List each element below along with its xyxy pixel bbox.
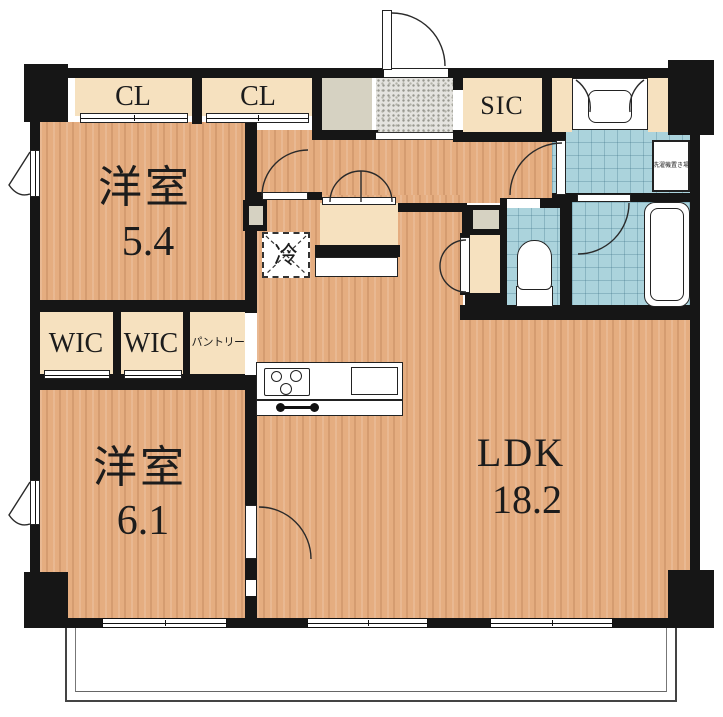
window-bedroom1-left <box>30 150 40 197</box>
bedroom1-door-leaf <box>262 192 308 200</box>
balcony-inner-rail <box>75 628 667 692</box>
window-ldk-south-2 <box>490 618 613 628</box>
washer-space-label: 洗濯機置き場 <box>653 163 689 169</box>
counter-handle-dot <box>276 403 285 412</box>
counter-handle-dot <box>310 403 319 412</box>
window-ldk-south-1 <box>307 618 428 628</box>
room-ldk-size: 18.2 <box>492 480 562 520</box>
wic2-sliding-door <box>124 370 182 379</box>
wall-between-closets <box>192 70 202 124</box>
wic1-sliding-door <box>44 370 110 379</box>
closet1-sliding-door <box>80 113 188 123</box>
wic2-label: WIC <box>124 330 178 358</box>
washroom-pillar-right <box>648 78 668 132</box>
wall-toilet-left <box>500 205 507 307</box>
casement-window-arc <box>9 152 30 195</box>
entry-tile <box>376 78 453 136</box>
wall-gap-bottom <box>246 580 256 596</box>
room-bedroom1-name: 洋室 <box>98 166 192 210</box>
corner-bottom-right <box>668 570 714 628</box>
pipe-space-box <box>322 78 372 132</box>
floorplan-canvas: 洋室 5.4 洋室 6.1 LDK 18.2 CL CL SIC WIC WIC… <box>0 0 723 717</box>
entrance-opening <box>384 68 448 78</box>
sink-icon <box>351 367 398 395</box>
wall-hall-south <box>398 203 467 212</box>
casement-window-arc <box>9 482 30 525</box>
corner-top-right <box>668 60 714 135</box>
wall-right <box>690 68 700 620</box>
wall-sic-right <box>542 70 552 140</box>
corner-bottom-left <box>24 572 68 628</box>
entry-step <box>376 132 453 140</box>
wall-sic-bottom <box>453 132 566 142</box>
pipe-space-cabinet <box>473 210 499 229</box>
linen-cabinet-floor <box>470 233 502 295</box>
sic-door-opening <box>453 90 463 130</box>
wall-wic-sep2 <box>183 312 190 376</box>
window-bedroom2-left <box>30 480 40 525</box>
toilet-door-opening <box>507 199 540 208</box>
wall-hall-closet-bottom <box>315 245 400 257</box>
room-bedroom1-floor <box>40 122 245 302</box>
wall-pipe-space-bottom <box>312 130 378 140</box>
closet2-sliding-door <box>206 113 309 123</box>
pipe-space-small <box>249 206 263 225</box>
toilet-bowl-icon <box>517 240 552 290</box>
wall-wet-bottom <box>460 305 700 320</box>
stove-burner-icon <box>290 370 302 382</box>
window-bedroom2-south <box>102 618 227 628</box>
closet-top-right-label: CL <box>240 83 276 111</box>
room-bedroom1-size: 5.4 <box>122 221 175 263</box>
bathtub-inner <box>650 208 684 301</box>
vanity-basin <box>588 90 632 123</box>
bathroom-door-leaf <box>577 194 631 202</box>
corner-top-left <box>24 64 68 122</box>
cabinet-door-leaf <box>460 237 470 293</box>
stove-burner-icon <box>280 383 292 395</box>
hall-closet-threshold <box>322 197 396 205</box>
entrance-door-arc <box>392 13 445 66</box>
wall-top <box>30 68 700 78</box>
wall-wic-top <box>30 300 257 312</box>
bedroom2-door-leaf <box>245 505 257 559</box>
wall-wic-sep1 <box>113 312 121 376</box>
shoe-in-closet-label: SIC <box>480 93 523 119</box>
entrance-door-leaf <box>382 10 392 70</box>
room-bedroom2-name: 洋室 <box>93 446 187 490</box>
room-ldk-name: LDK <box>477 433 565 473</box>
hall-closet-floor <box>320 203 398 245</box>
pantry-label: パントリー <box>191 338 244 349</box>
wic1-label: WIC <box>49 330 103 358</box>
wall-toilet-bath <box>560 195 572 307</box>
washroom-door-leaf <box>556 140 566 195</box>
closet-top-left-label: CL <box>115 83 151 111</box>
room-bedroom2-size: 6.1 <box>117 500 170 542</box>
wall-center-vertical <box>245 228 257 620</box>
hall-counter <box>315 257 398 277</box>
washroom-pillar-left <box>552 78 572 132</box>
refrigerator-label: 冷 <box>274 244 298 268</box>
stove-burner-icon <box>271 371 282 382</box>
wall-bedroom1-right <box>245 120 257 196</box>
